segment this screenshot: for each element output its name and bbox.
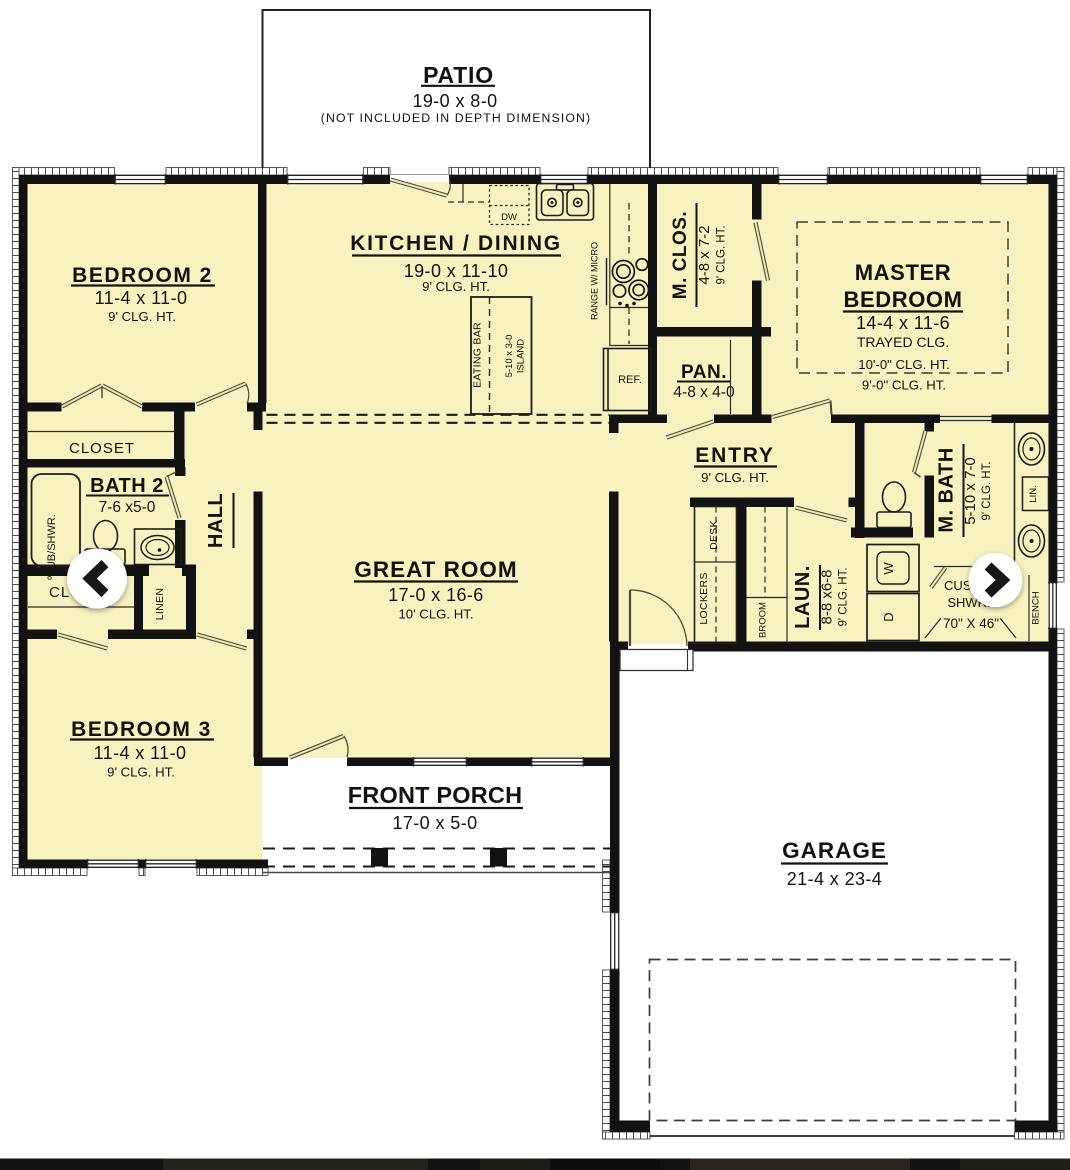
svg-text:M. BATH: M. BATH [936,447,958,532]
svg-text:14-4 x 11-6: 14-4 x 11-6 [856,313,950,333]
svg-text:GARAGE: GARAGE [782,838,887,863]
svg-text:ºTUB/SHWR.: ºTUB/SHWR. [46,514,58,580]
svg-text:11-4 x 11-0: 11-4 x 11-0 [94,743,187,763]
svg-text:LOCKERS: LOCKERS [698,572,710,624]
svg-text:19-0 x 8-0: 19-0 x 8-0 [412,91,497,111]
svg-text:5-10 x 7-0: 5-10 x 7-0 [962,457,979,525]
svg-text:DESK: DESK [708,520,720,550]
svg-text:17-0 x 5-0: 17-0 x 5-0 [392,813,477,833]
svg-text:5-10 x 3-0: 5-10 x 3-0 [504,335,515,378]
svg-text:17-0 x 16-6: 17-0 x 16-6 [388,585,483,605]
svg-text:FRONT PORCH: FRONT PORCH [348,782,523,808]
svg-text:4-8 x 7-2: 4-8 x 7-2 [696,225,713,284]
svg-text:21-4 x 23-4: 21-4 x 23-4 [787,869,882,889]
svg-text:8-8 x6-8: 8-8 x6-8 [819,569,836,624]
svg-text:CLOSET: CLOSET [69,440,135,457]
svg-text:BEDROOM 2: BEDROOM 2 [72,264,213,287]
svg-text:9' CLG. HT.: 9' CLG. HT. [108,309,176,324]
svg-text:9' CLG. HT.: 9' CLG. HT. [981,461,993,520]
svg-text:GREAT ROOM: GREAT ROOM [354,557,517,582]
svg-text:MASTER: MASTER [855,260,952,285]
svg-text:LAUN.: LAUN. [792,565,814,629]
svg-text:19-0 x 11-10: 19-0 x 11-10 [404,261,509,281]
svg-text:PAN.: PAN. [681,362,727,383]
svg-text:DW: DW [501,212,517,223]
svg-text:10'-0" CLG. HT.: 10'-0" CLG. HT. [858,357,949,372]
svg-text:EATING BAR: EATING BAR [472,322,484,388]
svg-text:BATH 2: BATH 2 [90,475,164,497]
svg-text:KITCHEN / DINING: KITCHEN / DINING [350,232,562,255]
svg-text:ENTRY: ENTRY [695,444,774,467]
svg-text:9' CLG. HT.: 9' CLG. HT. [422,279,490,294]
svg-text:M. CLOS.: M. CLOS. [670,211,691,299]
svg-text:10' CLG. HT.: 10' CLG. HT. [398,607,473,622]
svg-text:7-6 x5-0: 7-6 x5-0 [99,499,156,516]
svg-text:11-4 x 11-0: 11-4 x 11-0 [95,288,188,308]
svg-text:9' CLG. HT.: 9' CLG. HT. [716,225,728,284]
svg-text:(NOT INCLUDED IN DEPTH DIMENSI: (NOT INCLUDED IN DEPTH DIMENSION) [321,111,591,125]
svg-text:9' CLG. HT.: 9' CLG. HT. [838,567,850,626]
svg-text:BEDROOM: BEDROOM [843,287,962,312]
svg-text:BENCH: BENCH [1031,591,1042,624]
svg-text:REF.: REF. [618,374,642,386]
svg-text:RANGE W/ MICRO: RANGE W/ MICRO [590,242,600,320]
svg-text:70" X 46": 70" X 46" [943,616,999,631]
svg-text:BEDROOM 3: BEDROOM 3 [71,718,212,741]
svg-text:LIN.: LIN. [1028,485,1039,502]
svg-text:9'-0" CLG. HT.: 9'-0" CLG. HT. [862,378,946,393]
svg-text:LINEN: LINEN [154,588,166,620]
svg-text:BROOM: BROOM [758,602,769,638]
svg-text:9' CLG. HT.: 9' CLG. HT. [701,470,769,485]
svg-text:HALL: HALL [205,493,227,548]
svg-text:TRAYED CLG.: TRAYED CLG. [857,334,949,350]
svg-text:PATIO: PATIO [423,62,494,88]
svg-text:D: D [881,612,896,621]
svg-text:9' CLG. HT.: 9' CLG. HT. [107,765,175,780]
svg-text:ISLAND: ISLAND [516,339,527,373]
svg-text:4-8 x 4-0: 4-8 x 4-0 [673,384,735,401]
svg-text:W: W [881,562,896,575]
